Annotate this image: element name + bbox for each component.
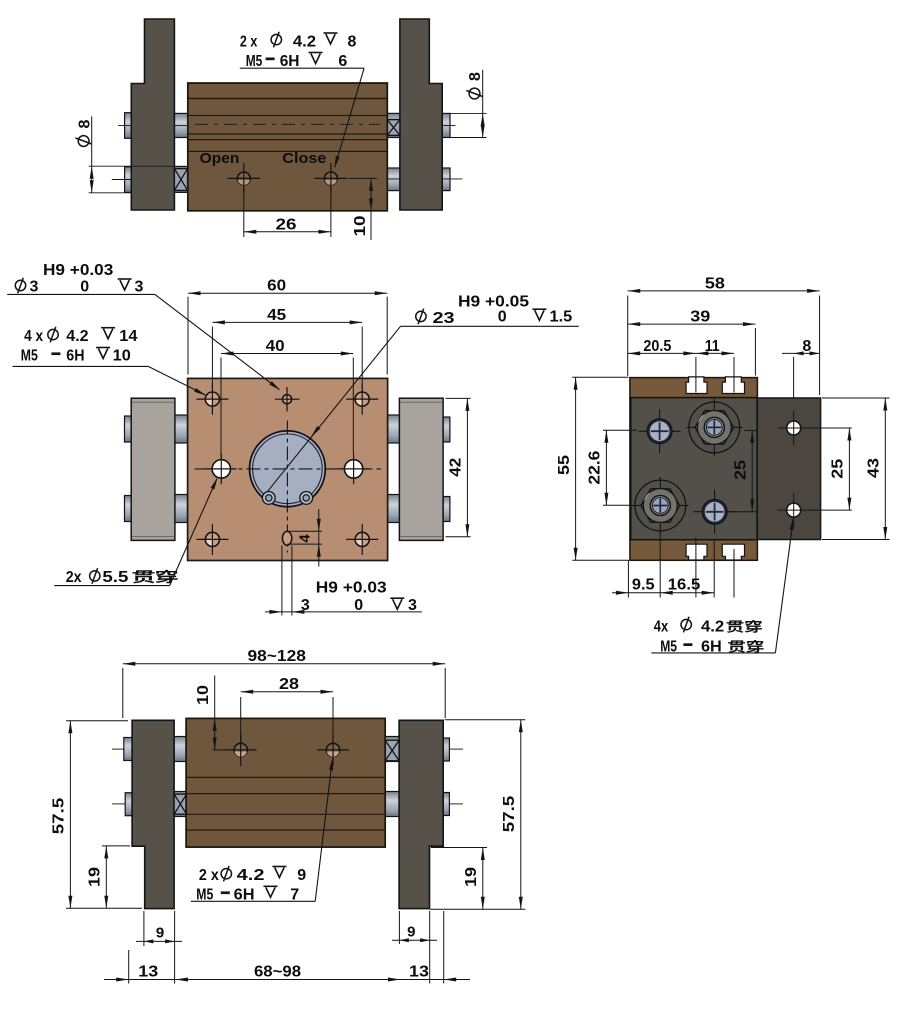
svg-text:4 x: 4 x <box>24 328 43 345</box>
svg-text:3: 3 <box>301 597 310 614</box>
svg-text:4.2: 4.2 <box>237 867 265 884</box>
svg-text:0: 0 <box>498 309 507 326</box>
svg-text:M5: M5 <box>21 348 38 365</box>
svg-text:H9 +0.05: H9 +0.05 <box>458 294 529 311</box>
svg-text:43: 43 <box>866 458 883 478</box>
svg-text:6: 6 <box>338 53 347 70</box>
svg-text:2 x: 2 x <box>240 33 257 50</box>
svg-text:58: 58 <box>705 275 725 292</box>
svg-text:6H: 6H <box>66 348 84 365</box>
svg-text:9: 9 <box>156 925 164 942</box>
svg-text:3: 3 <box>135 278 144 295</box>
svg-text:10: 10 <box>352 215 369 236</box>
svg-text:Open: Open <box>200 150 240 167</box>
svg-text:5.5: 5.5 <box>102 569 128 586</box>
svg-text:60: 60 <box>267 278 286 295</box>
svg-text:2x: 2x <box>66 569 82 586</box>
svg-text:57.5: 57.5 <box>501 796 518 833</box>
svg-text:6H: 6H <box>280 53 300 70</box>
svg-text:42: 42 <box>448 458 465 477</box>
svg-text:19: 19 <box>463 867 480 887</box>
svg-text:23: 23 <box>433 310 455 327</box>
svg-text:28: 28 <box>279 676 299 693</box>
svg-text:4.2: 4.2 <box>66 328 88 345</box>
svg-text:10: 10 <box>113 348 131 365</box>
svg-text:8: 8 <box>348 33 357 50</box>
svg-text:8: 8 <box>467 72 484 81</box>
svg-text:45: 45 <box>267 307 286 324</box>
svg-text:13: 13 <box>138 964 158 981</box>
svg-text:9: 9 <box>407 924 415 941</box>
svg-text:H9 +0.03: H9 +0.03 <box>316 579 387 596</box>
svg-text:55: 55 <box>556 455 573 475</box>
svg-text:25: 25 <box>732 460 749 480</box>
svg-text:19: 19 <box>87 867 104 887</box>
svg-text:9.5: 9.5 <box>632 576 655 593</box>
svg-text:26: 26 <box>276 217 297 234</box>
svg-text:H9 +0.03: H9 +0.03 <box>43 262 113 279</box>
svg-text:14: 14 <box>119 328 137 345</box>
svg-text:20.5: 20.5 <box>643 338 671 355</box>
svg-text:57.5: 57.5 <box>51 798 68 835</box>
svg-text:0: 0 <box>80 278 89 295</box>
svg-text:M5: M5 <box>246 53 263 70</box>
svg-text:98~128: 98~128 <box>248 648 307 665</box>
svg-text:4x: 4x <box>654 619 668 636</box>
svg-text:68~98: 68~98 <box>254 964 301 981</box>
svg-text:2 x: 2 x <box>199 867 219 884</box>
svg-text:1.5: 1.5 <box>550 309 573 326</box>
svg-text:4.2: 4.2 <box>293 33 316 50</box>
svg-text:8: 8 <box>76 120 93 129</box>
svg-text:9: 9 <box>297 867 306 884</box>
svg-text:0: 0 <box>354 597 363 614</box>
svg-text:4.2: 4.2 <box>701 619 724 636</box>
svg-text:22.6: 22.6 <box>587 450 604 484</box>
svg-text:40: 40 <box>266 338 285 355</box>
svg-text:25: 25 <box>830 459 847 479</box>
svg-text:3: 3 <box>408 597 417 614</box>
svg-text:16.5: 16.5 <box>668 576 701 593</box>
svg-text:11: 11 <box>705 338 720 355</box>
svg-text:13: 13 <box>409 964 429 981</box>
svg-text:39: 39 <box>690 309 710 326</box>
svg-text:10: 10 <box>195 685 212 705</box>
svg-text:3: 3 <box>30 278 39 295</box>
svg-text:4: 4 <box>297 534 314 543</box>
svg-text:8: 8 <box>802 338 811 355</box>
svg-text:Close: Close <box>282 150 326 167</box>
